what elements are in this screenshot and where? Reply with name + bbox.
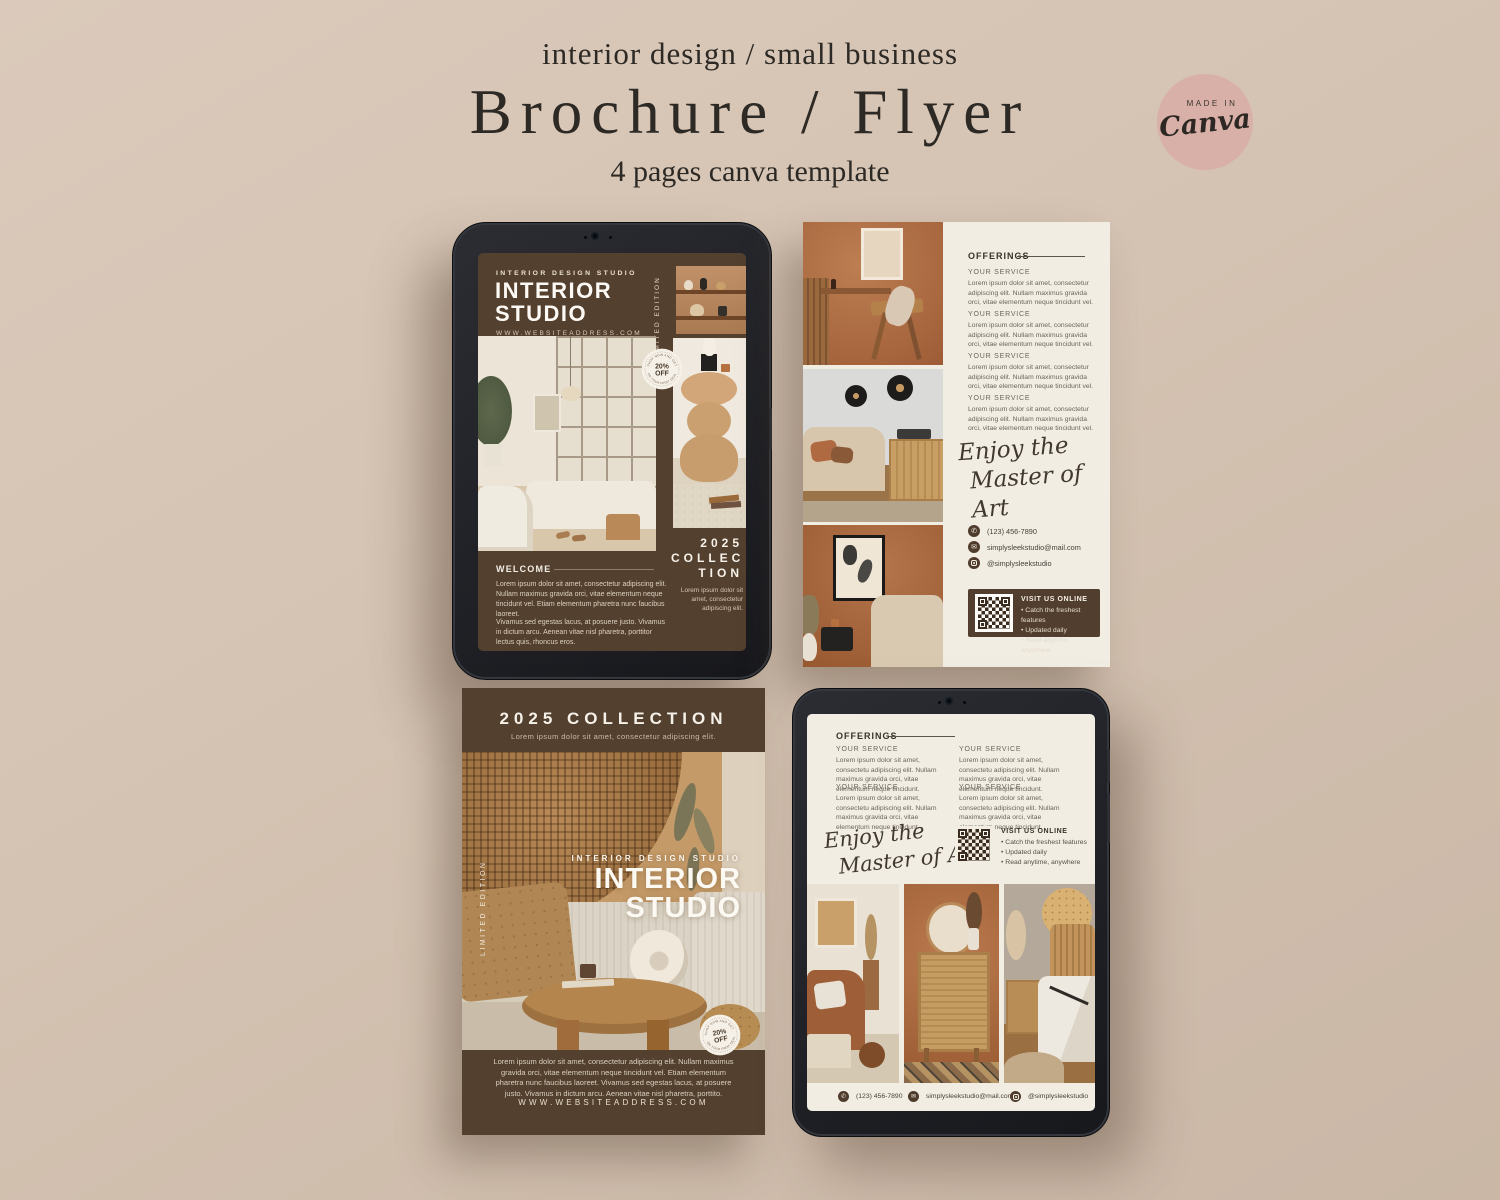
- service-label: YOUR SERVICE: [968, 311, 1096, 318]
- qr-pattern: [958, 829, 990, 861]
- visit-bullet: Updated daily: [1021, 626, 1100, 636]
- qr-eye: [981, 829, 990, 838]
- welcome-divider: [554, 569, 654, 570]
- canva-logo: Canva: [1156, 103, 1255, 144]
- patterned-rug: [904, 1062, 999, 1083]
- photo-shelves: [676, 266, 746, 334]
- visit-bullet: Catch the freshest features: [1021, 606, 1100, 626]
- pendant-lamp: [570, 336, 571, 388]
- collection-line: COLLEC: [671, 551, 743, 566]
- vase-shape: [968, 928, 979, 950]
- service-text: Lorem ipsum dolor sit amet, consectetur …: [968, 405, 1096, 434]
- cabinet-leg: [924, 1048, 929, 1062]
- offerings-divider: [1017, 256, 1085, 257]
- collection-line: TION: [671, 566, 743, 581]
- lamp-shape: [703, 338, 716, 356]
- photo-rattan-cabinet: [904, 884, 999, 1083]
- plant-pot: [484, 444, 502, 466]
- badge-value: 20%: [655, 363, 669, 370]
- pillow-shape: [813, 980, 846, 1010]
- qr-eye: [958, 852, 967, 861]
- camera-dot: [584, 236, 587, 239]
- sofa-shape: [871, 595, 943, 667]
- studio-title-line1: INTERIOR: [495, 279, 612, 302]
- stone-base: [680, 434, 738, 482]
- wall-art: [533, 394, 561, 432]
- email-address: simplysleekstudio@mail.com: [987, 543, 1081, 552]
- camera-dot: [963, 701, 966, 704]
- dried-flowers: [966, 892, 982, 932]
- instagram-handle: @simplysleekstudio: [987, 559, 1052, 568]
- instagram-handle: @simplysleekstudio: [1028, 1093, 1088, 1100]
- ball-pillow: [859, 1042, 885, 1068]
- armchair-shape: [478, 486, 533, 551]
- qr-eye: [958, 829, 967, 838]
- visit-bullet: Catch the freshest features: [1001, 838, 1093, 848]
- phone-number: (123) 456-7890: [987, 527, 1037, 536]
- qr-code: [975, 594, 1013, 632]
- page4-offerings-flyer: OFFERINGS YOUR SERVICE Lorem ipsum dolor…: [807, 714, 1095, 1111]
- service-label: YOUR SERVICE: [968, 395, 1096, 402]
- vase-shape: [684, 280, 693, 290]
- phone-icon: ✆: [838, 1091, 849, 1102]
- service-label: YOUR SERVICE: [836, 784, 950, 791]
- front-camera: [945, 697, 953, 705]
- tablet-mockup-page4: OFFERINGS YOUR SERVICE Lorem ipsum dolor…: [792, 688, 1110, 1137]
- visit-heading: VISIT US ONLINE: [1021, 596, 1088, 603]
- record-player: [897, 429, 931, 439]
- qr-eye: [978, 620, 987, 629]
- side-table-shape: [606, 514, 640, 540]
- welcome-paragraph: Vivamus sed egestas lacus, at posuere ju…: [496, 618, 668, 648]
- service-label: YOUR SERVICE: [836, 746, 950, 753]
- contact-phone: ✆ (123) 456-7890: [838, 1091, 902, 1102]
- stone-top: [681, 372, 737, 406]
- script-line2: Master of Art: [959, 458, 1110, 526]
- service-block: YOUR SERVICE Lorem ipsum dolor sit amet,…: [968, 395, 1096, 434]
- vinyl-record: [887, 375, 913, 401]
- made-in-canva-badge: MADE IN Canva: [1157, 74, 1253, 170]
- service-text: Lorem ipsum dolor sit amet, consectetur …: [968, 363, 1096, 392]
- pendant-lamp-shade: [561, 386, 581, 401]
- rattan-cabinet: [918, 952, 990, 1052]
- dried-stems: [865, 914, 877, 960]
- discount-badge: SHOP NOW AND GET ON YOUR FIRST DEAL 20% …: [695, 1010, 745, 1060]
- framed-art: [815, 898, 857, 948]
- tablet-side-button: [769, 408, 772, 450]
- studio-title: INTERIOR STUDIO: [495, 279, 612, 325]
- badge-unit: OFF: [655, 371, 669, 378]
- studio-title-line2: STUDIO: [495, 302, 612, 325]
- cabinet-leg: [974, 1048, 979, 1062]
- slipper-shape: [572, 534, 587, 541]
- visit-bullet: Read anytime, anywhere: [1001, 858, 1093, 868]
- footer-paragraph: Lorem ipsum dolor sit amet, consectetur …: [488, 1057, 739, 1099]
- instagram-glyph: [971, 560, 977, 566]
- email-icon: ✉: [968, 541, 980, 553]
- instagram-icon: [968, 557, 980, 569]
- instagram-icon: [1010, 1091, 1021, 1102]
- qr-code: [955, 826, 993, 864]
- page-title: Brochure / Flyer: [0, 76, 1500, 149]
- collection-line: 2025: [671, 536, 743, 551]
- vase-shape: [716, 282, 726, 290]
- studio-label: INTERIOR DESIGN STUDIO: [571, 854, 741, 863]
- vase-shape: [718, 306, 727, 316]
- jute-rug: [1004, 1052, 1064, 1083]
- visit-bullet: Updated daily: [1001, 848, 1093, 858]
- tablet-mockup-page1: INTERIOR DESIGN STUDIO INTERIOR STUDIO W…: [452, 222, 772, 680]
- bedding-shape: [1038, 976, 1095, 1062]
- qr-eye: [978, 597, 987, 606]
- contact-email: ✉ simplysleekstudio@mail.com: [908, 1091, 1013, 1102]
- website-url: WWW.WEBSITEADDRESS.COM: [462, 1098, 765, 1107]
- phone-number: (123) 456-7890: [856, 1093, 902, 1100]
- visit-heading: VISIT US ONLINE: [1001, 828, 1068, 835]
- vase-grass: [803, 595, 819, 635]
- pedestal-shape: [863, 960, 879, 1010]
- collection-block: 2025 COLLEC TION Lorem ipsum dolor sit a…: [671, 536, 743, 613]
- photo-vinyl-lounge: [803, 369, 943, 522]
- photo-stone-table: [673, 338, 746, 528]
- tablet-side-button: [1107, 749, 1110, 783]
- email-address: simplysleekstudio@mail.com: [926, 1093, 1013, 1100]
- contact-instagram: @simplysleekstudio: [968, 557, 1052, 569]
- photo-art-sofa: [803, 525, 943, 667]
- visit-bullet: Read anytime, anywhere: [1021, 636, 1100, 656]
- vase-shape: [700, 278, 707, 290]
- wine-glass: [831, 279, 836, 289]
- mug-shape: [831, 619, 839, 627]
- table-leg: [647, 1020, 669, 1050]
- mug-shape: [721, 364, 730, 372]
- collection-subtitle: Lorem ipsum dolor sit amet, consectetur …: [462, 732, 765, 741]
- vase-shape: [690, 304, 704, 316]
- welcome-heading: WELCOME: [496, 564, 551, 574]
- limited-edition-label: LIMITED EDITION: [480, 836, 487, 956]
- service-block: YOUR SERVICE Lorem ipsum dolor sit amet,…: [968, 269, 1096, 308]
- rug-shape: [803, 501, 943, 522]
- slipper-shape: [556, 531, 571, 540]
- service-label: YOUR SERVICE: [968, 269, 1096, 276]
- vase-shape: [803, 633, 817, 661]
- collection-title: 2025 COLLECTION: [462, 709, 765, 729]
- qr-eye: [1001, 597, 1010, 606]
- photo-bedroom: [1004, 884, 1095, 1083]
- service-text: Lorem ipsum dolor sit amet, consectetur …: [968, 321, 1096, 350]
- pillow-shape: [830, 446, 854, 464]
- tablet-side-button: [1107, 793, 1110, 843]
- coffee-table: [522, 978, 707, 1034]
- front-camera: [591, 232, 599, 240]
- studio-title-line2: STUDIO: [594, 894, 741, 923]
- email-icon: ✉: [908, 1091, 919, 1102]
- coffee-table: [807, 1034, 851, 1068]
- plant-shape: [478, 376, 512, 446]
- service-block: YOUR SERVICE Lorem ipsum dolor sit amet,…: [968, 353, 1096, 392]
- camera-dot: [938, 701, 941, 704]
- camera-dot: [609, 236, 612, 239]
- vinyl-record: [845, 385, 867, 407]
- shelf-board: [676, 290, 746, 294]
- studio-title-line1: INTERIOR: [594, 865, 741, 894]
- visit-us-box: VISIT US ONLINE Catch the freshest featu…: [968, 589, 1100, 637]
- photo-terracotta-desk: [803, 222, 943, 365]
- shelf-board: [676, 316, 746, 320]
- contact-instagram: @simplysleekstudio: [1010, 1091, 1088, 1102]
- header-subtitle: 4 pages canva template: [0, 155, 1500, 189]
- photo-leather-armchair: [807, 884, 899, 1083]
- instagram-glyph: [1013, 1094, 1019, 1100]
- service-label: YOUR SERVICE: [968, 353, 1096, 360]
- service-label: YOUR SERVICE: [959, 746, 1073, 753]
- contact-email: ✉ simplysleekstudio@mail.com: [968, 541, 1081, 553]
- studio-title: INTERIOR STUDIO: [594, 865, 741, 923]
- pampas-grass: [1006, 910, 1026, 960]
- service-block: YOUR SERVICE Lorem ipsum dolor sit amet,…: [968, 311, 1096, 350]
- art-blob: [843, 545, 857, 565]
- page2-offerings-flyer: OFFERINGS YOUR SERVICE Lorem ipsum dolor…: [803, 222, 1110, 667]
- qr-pattern: [978, 597, 1010, 629]
- service-text: Lorem ipsum dolor sit amet, consectetur …: [968, 279, 1096, 308]
- contact-phone: ✆ (123) 456-7890: [968, 525, 1037, 537]
- script-tagline: Enjoy the Master of Art: [957, 429, 1110, 526]
- visit-bullets: Catch the freshest features Updated dail…: [1001, 838, 1093, 868]
- stool-shape: [821, 627, 853, 651]
- table-leg: [557, 1020, 579, 1050]
- page1-brochure-cover: INTERIOR DESIGN STUDIO INTERIOR STUDIO W…: [478, 253, 746, 651]
- page3-collection-cover: 2025 COLLECTION Lorem ipsum dolor sit am…: [462, 688, 765, 1135]
- template-preview-canvas: interior design / small business Brochur…: [0, 0, 1500, 1200]
- phone-icon: ✆: [968, 525, 980, 537]
- rattan-cabinet: [889, 439, 943, 501]
- service-label: YOUR SERVICE: [959, 784, 1073, 791]
- collection-caption: Lorem ipsum dolor sit amet, consectetur …: [671, 586, 743, 613]
- offerings-divider: [889, 736, 955, 737]
- mug-shape: [580, 964, 596, 978]
- header-tagline: interior design / small business: [0, 36, 1500, 72]
- visit-bullets: Catch the freshest features Updated dail…: [1021, 606, 1100, 656]
- wall-frame: [861, 228, 903, 280]
- plinth-shape: [701, 354, 717, 371]
- studio-label: INTERIOR DESIGN STUDIO: [496, 270, 637, 277]
- photo-living-room: [478, 336, 656, 551]
- discount-badge: SHOP NOW AND GET ON YOUR FIRST DEAL 20% …: [641, 348, 683, 390]
- welcome-paragraph: Lorem ipsum dolor sit amet, consectetur …: [496, 580, 668, 620]
